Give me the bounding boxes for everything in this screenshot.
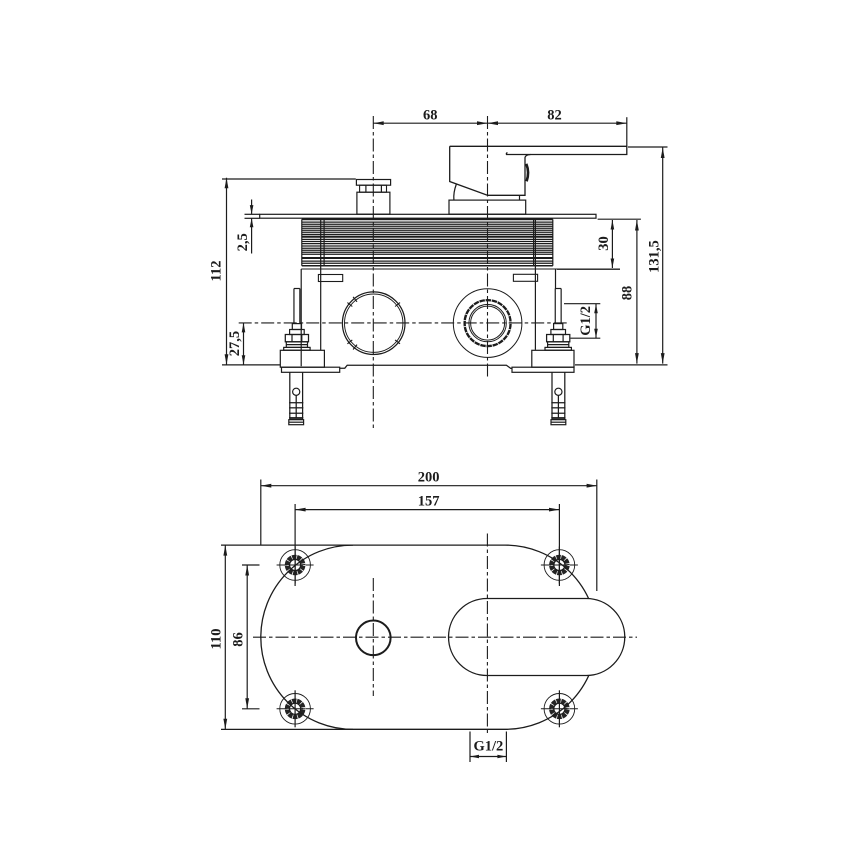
svg-text:G1/2: G1/2 — [473, 738, 503, 754]
svg-text:157: 157 — [418, 494, 440, 510]
svg-text:131,5: 131,5 — [647, 240, 663, 273]
svg-text:2,5: 2,5 — [235, 233, 251, 251]
svg-text:27,5: 27,5 — [227, 331, 243, 356]
svg-text:88: 88 — [620, 286, 636, 301]
svg-text:30: 30 — [596, 236, 612, 251]
svg-text:110: 110 — [208, 629, 224, 650]
svg-text:68: 68 — [423, 108, 438, 124]
svg-text:86: 86 — [231, 632, 247, 647]
svg-text:112: 112 — [209, 261, 225, 282]
svg-text:82: 82 — [547, 108, 562, 124]
svg-text:G1/2: G1/2 — [578, 306, 594, 336]
svg-text:200: 200 — [418, 470, 440, 486]
